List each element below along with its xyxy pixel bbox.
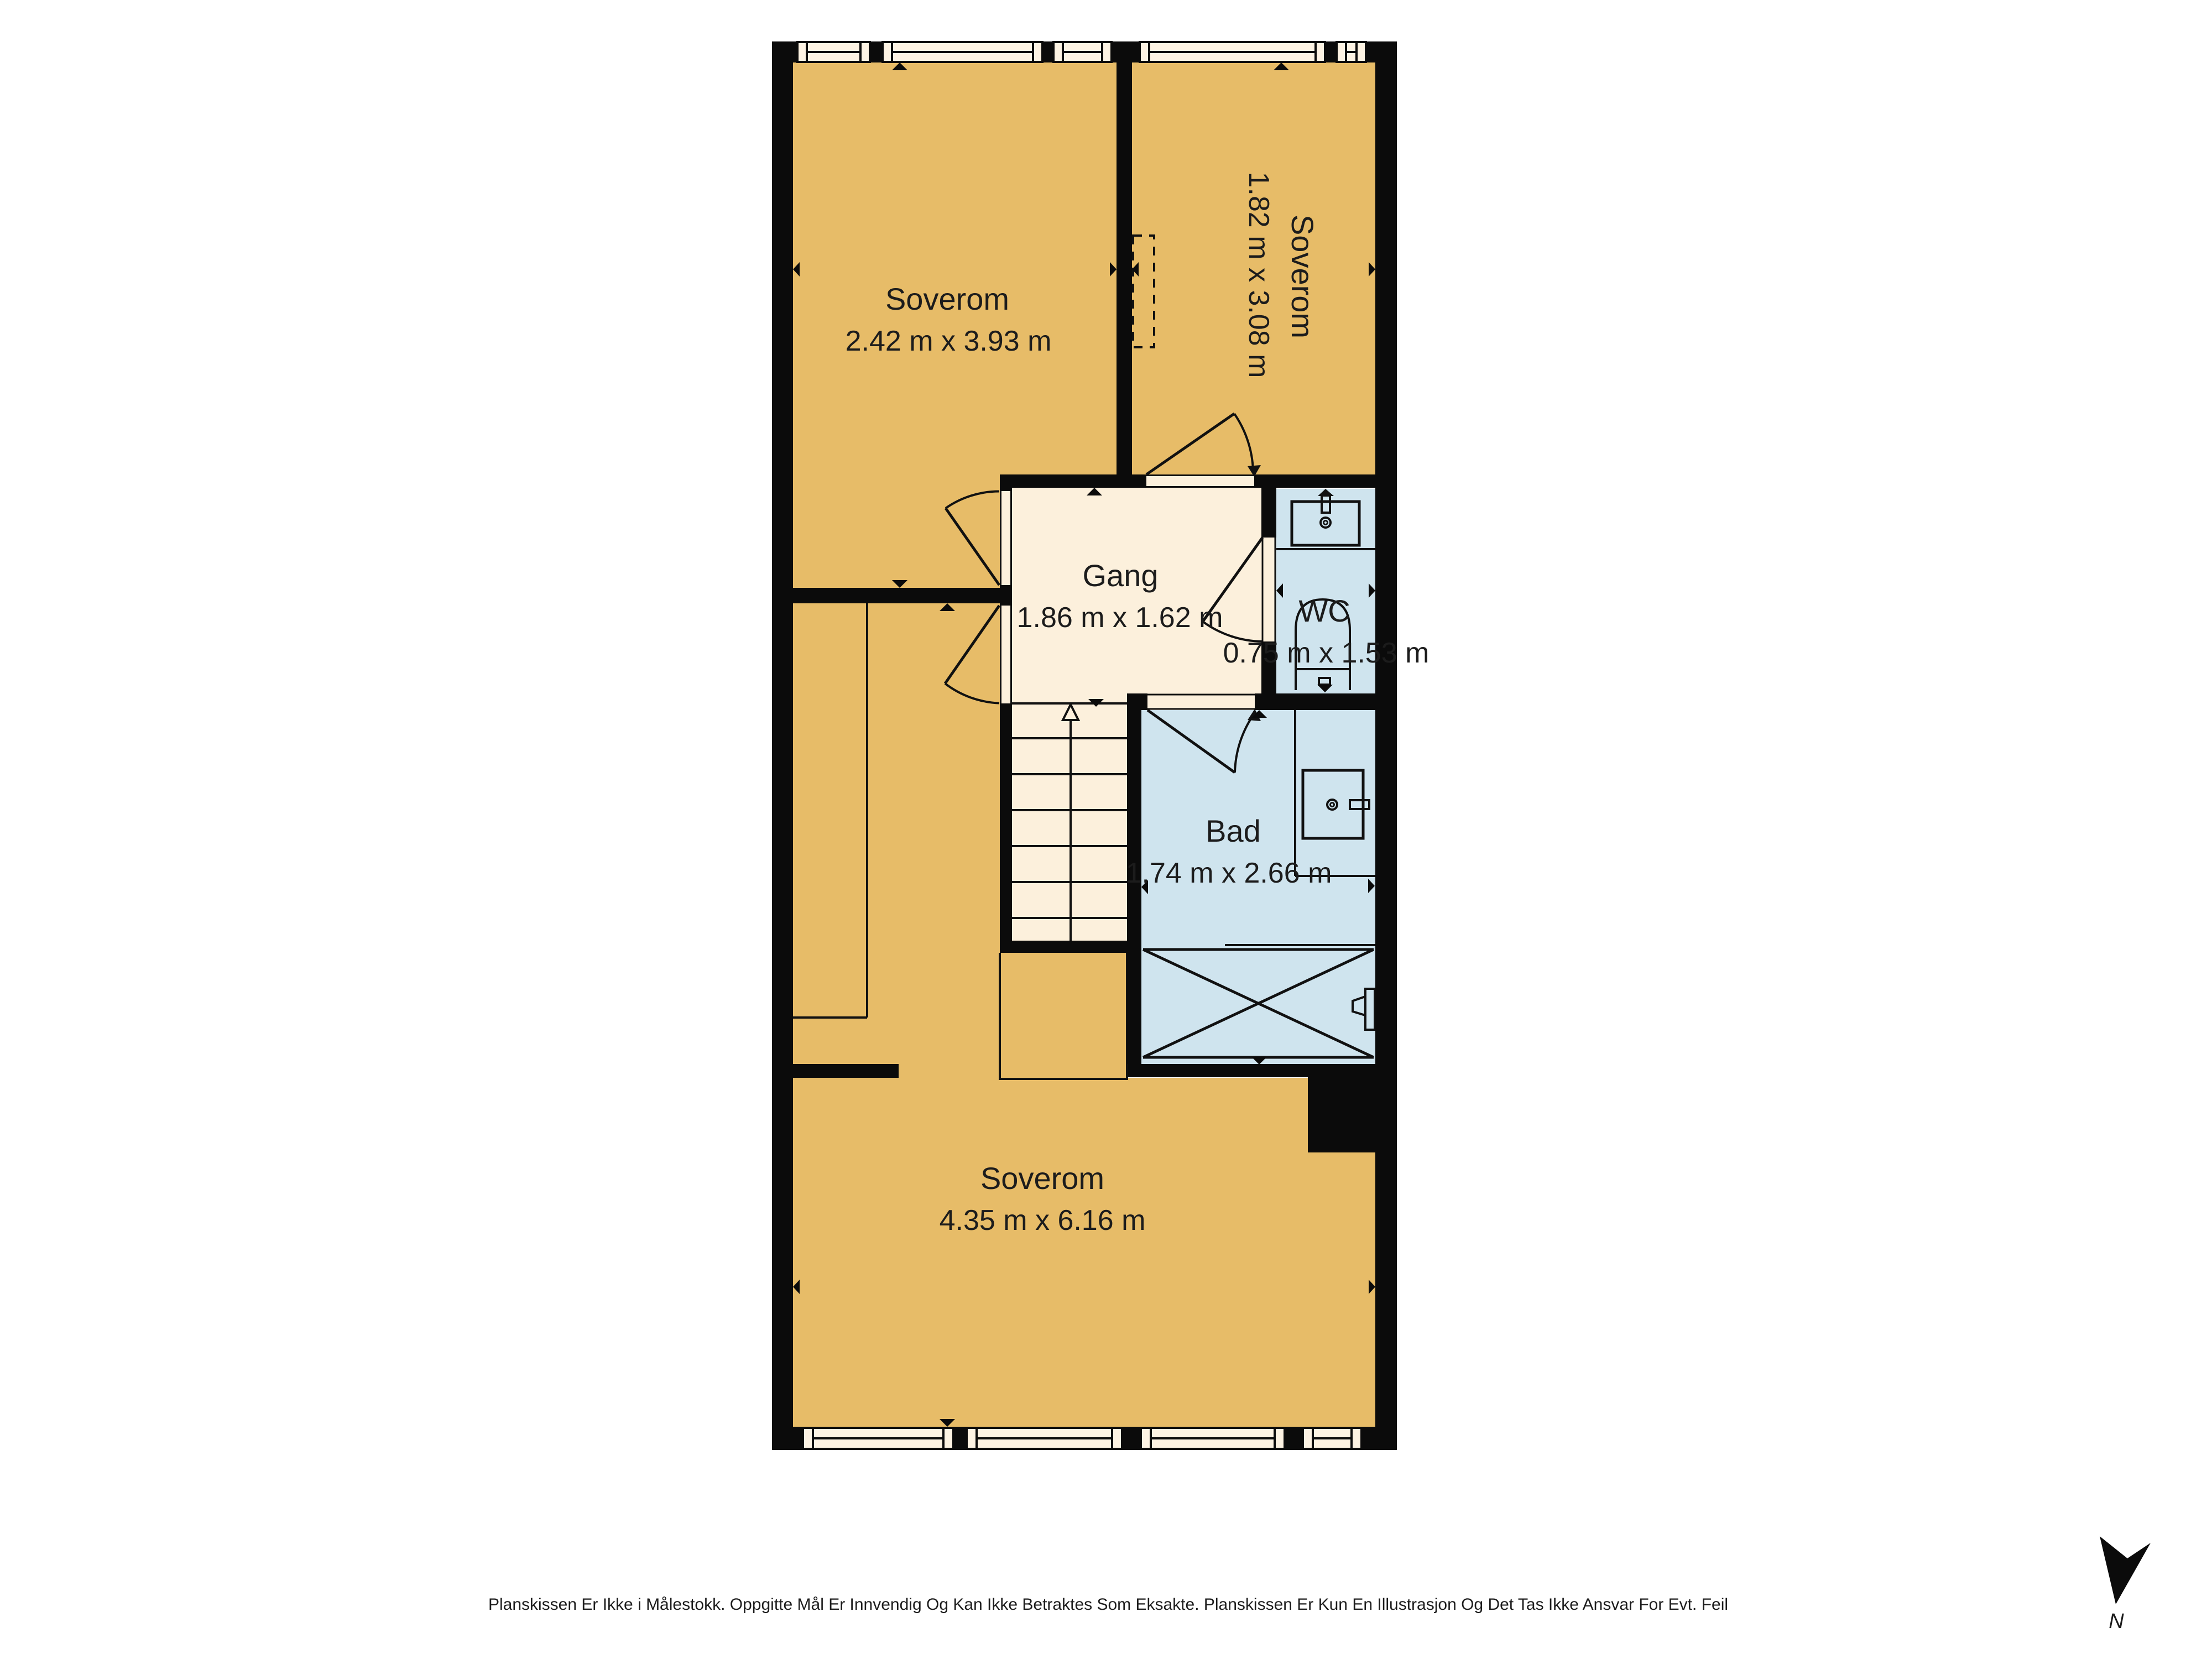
svg-text:Planskissen Er Ikke i Målestok: Planskissen Er Ikke i Målestokk. Oppgitt… [488, 1595, 1728, 1614]
svg-text:1.86 m x 1.62 m: 1.86 m x 1.62 m [1017, 602, 1223, 634]
svg-text:Bad: Bad [1206, 813, 1261, 848]
svg-text:1.74 m x 2.66 m: 1.74 m x 2.66 m [1126, 857, 1332, 889]
svg-text:0.75 m x 1.53 m: 0.75 m x 1.53 m [1223, 637, 1430, 669]
svg-text:4.35 m x 6.16 m: 4.35 m x 6.16 m [940, 1204, 1146, 1237]
svg-text:Soverom: Soverom [980, 1161, 1104, 1196]
svg-text:2.42 m x 3.93 m: 2.42 m x 3.93 m [846, 325, 1052, 357]
svg-text:Gang: Gang [1083, 558, 1159, 593]
svg-text:N: N [2109, 1610, 2124, 1633]
svg-text:WC: WC [1298, 593, 1350, 628]
svg-text:Soverom: Soverom [1285, 215, 1320, 338]
svg-text:Soverom: Soverom [885, 281, 1009, 316]
svg-text:1.82 m x 3.08 m: 1.82 m x 3.08 m [1243, 172, 1275, 378]
